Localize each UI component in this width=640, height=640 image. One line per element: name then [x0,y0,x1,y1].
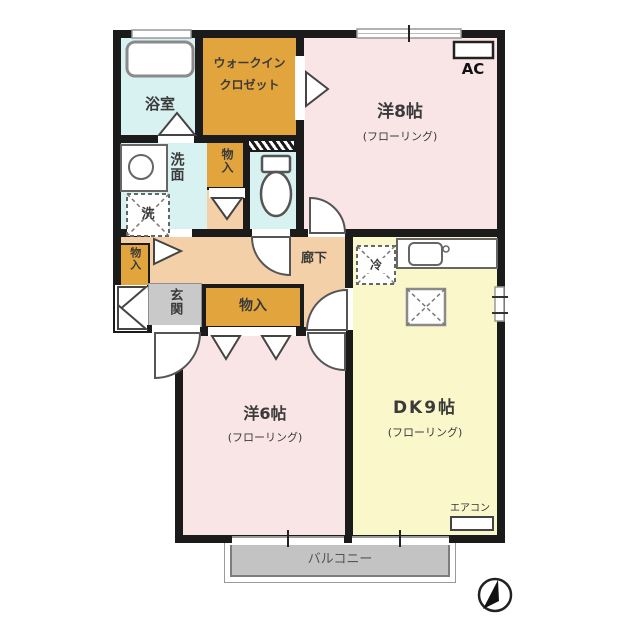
door-arc-dk [307,290,347,330]
door-arcs [155,198,347,378]
door-triangle-closet-1 [212,336,240,359]
door-arc-entrance [155,333,200,378]
door-triangle-wic [306,72,328,106]
toilet-icon [261,156,291,216]
door-arc-room6 [308,333,345,370]
label-aircon: エアコン [445,503,495,516]
label-entrance: 玄関 [166,288,182,316]
label-bathroom: 浴室 [121,95,199,114]
label-storage-upper: 物入 [219,148,234,174]
kitchen-counter [397,239,497,268]
aircon-unit [451,517,493,530]
door-triangle-washroom [154,239,181,264]
label-balcony: バルコニー [260,552,420,568]
label-storage-wide: 物入 [202,298,304,316]
door-triangle-storage [212,198,242,219]
sink-icon [121,145,167,191]
label-storage-left: 物入 [128,247,142,271]
door-arc-toilet [252,237,290,275]
label-room8: 洋8帖 [320,102,480,123]
label-washer: 洗 [134,207,162,223]
bathtub-icon [127,42,193,76]
door-triangle-entry-2 [118,305,146,329]
door-triangle-closet-2 [262,336,290,359]
label-hallway: 廊下 [292,251,336,267]
fixtures-overlay [0,0,640,640]
label-ac: AC [450,60,496,79]
door-triangle-bathroom [159,113,195,135]
label-wic-line1: ウォークイン [201,56,298,71]
compass-icon [479,579,511,611]
label-fridge: 冷 [362,258,390,273]
floor-plan: 浴室 ウォークイン クロゼット 洋8帖 (フローリング) AC 洗面 洗 物入 … [0,0,640,640]
floor-hatch [407,289,445,325]
label-dk-floor: (フローリング) [355,426,495,440]
label-washroom: 洗面 [167,152,185,182]
label-room6-floor: (フローリング) [190,431,340,445]
ac-unit [454,42,493,58]
label-room8-floor: (フローリング) [320,130,480,144]
label-dk: DK9帖 [355,398,495,419]
door-arc-room8 [310,198,345,233]
label-wic-line2: クロゼット [201,78,298,93]
label-room6: 洋6帖 [190,404,340,424]
